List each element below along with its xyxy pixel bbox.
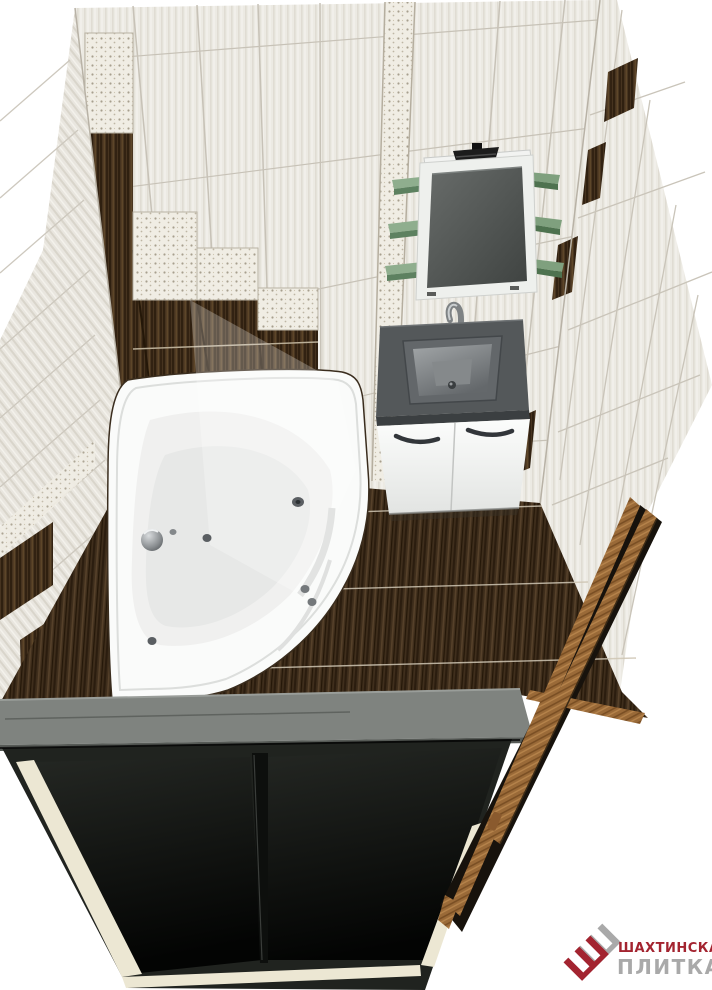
vanity [376, 305, 530, 521]
logo-text-line1: ШАХТИНСКАЯ [618, 941, 712, 956]
logo-text-line2: ПЛИТКА [617, 955, 712, 979]
sink [403, 336, 502, 404]
mirror-glass [427, 167, 527, 288]
bathroom-3d-scene: Ш Ш ШАХТИНСКАЯ ПЛИТКА [0, 0, 712, 990]
bathroom-render-image: Ш Ш ШАХТИНСКАЯ ПЛИТКА [0, 0, 712, 990]
